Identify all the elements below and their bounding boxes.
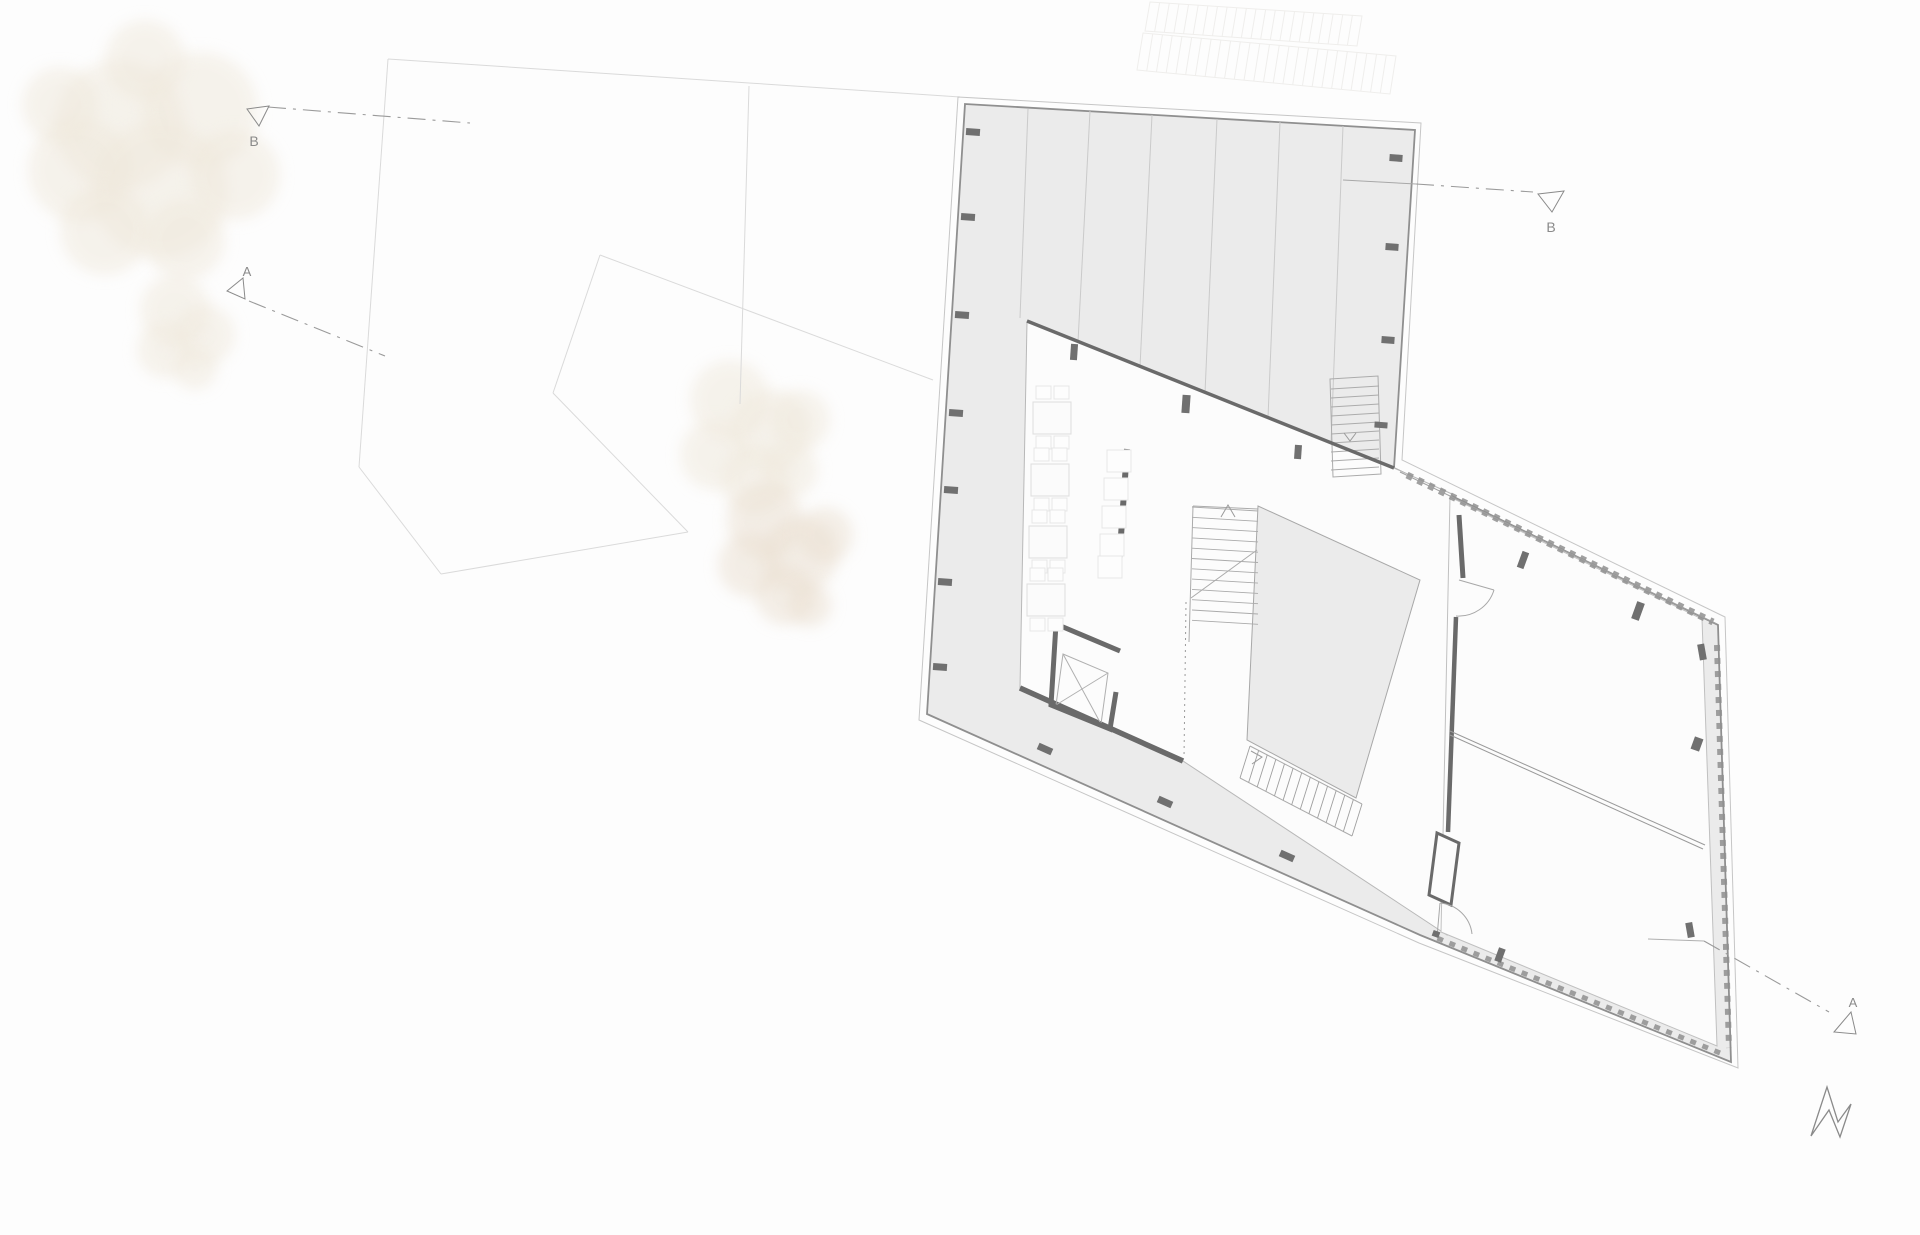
neighbor-stripe xyxy=(1280,11,1285,41)
tree-blob xyxy=(173,346,217,390)
chair xyxy=(1036,436,1051,449)
neighbor-stripe xyxy=(1156,35,1162,72)
neighbor-stripe xyxy=(1264,45,1270,83)
table xyxy=(1102,506,1126,528)
column xyxy=(1381,336,1394,344)
section-label-a-left: A xyxy=(243,264,252,279)
north-arrow-icon xyxy=(1811,1087,1851,1137)
neighbor-stripe xyxy=(1164,3,1169,32)
neighbor-stripe xyxy=(1273,45,1279,83)
column xyxy=(966,128,980,136)
column xyxy=(938,578,952,586)
neighbor-stripe xyxy=(1299,12,1304,42)
neighbor-stripe xyxy=(1309,13,1314,43)
neighbor-stripe xyxy=(1351,52,1357,90)
neighbor-stripe xyxy=(1312,49,1318,87)
neighbor-stripe xyxy=(1174,4,1179,33)
chair xyxy=(1054,436,1069,449)
section-label-b-right: B xyxy=(1546,219,1555,235)
tree-blob xyxy=(797,507,853,563)
column xyxy=(1294,445,1302,459)
chair xyxy=(1054,386,1069,399)
tree-blob xyxy=(60,185,150,275)
neighbor-stripe xyxy=(1318,13,1323,43)
tree-blob xyxy=(145,200,225,280)
building xyxy=(919,97,1738,1068)
property-line xyxy=(359,59,388,467)
neighbor-stripe xyxy=(1338,15,1343,45)
floor-plan-drawing: B A B A xyxy=(0,0,1920,1235)
neighbor-stripe xyxy=(1332,51,1338,89)
neighbor-stripe xyxy=(1261,10,1266,40)
section-line-b-left: B xyxy=(247,106,470,149)
neighbor-stripe xyxy=(1205,39,1211,76)
chair xyxy=(1052,448,1067,461)
property-line xyxy=(749,83,960,97)
neighbor-stripe xyxy=(1270,10,1275,40)
table xyxy=(1029,526,1067,558)
neighbor-stripe xyxy=(1293,47,1299,85)
chair xyxy=(1036,386,1051,399)
neighbor-stripe xyxy=(1186,37,1192,74)
table xyxy=(1100,534,1124,556)
chair xyxy=(1034,498,1049,511)
neighbor-stripe xyxy=(1234,42,1240,79)
neighbor-stripe xyxy=(1176,37,1182,74)
chair xyxy=(1050,510,1065,523)
neighbor-stripe xyxy=(1212,6,1217,35)
neighbor-stripe xyxy=(1254,44,1260,81)
neighbor-stripe xyxy=(1341,52,1347,90)
property-line xyxy=(441,532,688,574)
column xyxy=(1070,344,1078,360)
tree-blob xyxy=(22,67,98,143)
neighbor-stripe xyxy=(1380,55,1386,93)
chair xyxy=(1032,510,1047,523)
chair xyxy=(1048,618,1063,631)
neighbor-stripe xyxy=(1241,8,1246,37)
neighbor-stripe xyxy=(1283,46,1289,84)
neighbor-stripe xyxy=(1361,53,1367,91)
neighbor-stripe xyxy=(1244,43,1250,80)
section-label-b-left: B xyxy=(249,133,258,149)
neighbor-stripe xyxy=(1328,14,1333,44)
chair xyxy=(1048,568,1063,581)
chair xyxy=(1052,498,1067,511)
neighbor-stripe xyxy=(1222,7,1227,36)
section-line-a-left: A xyxy=(227,264,385,356)
table xyxy=(1031,464,1069,496)
property-line xyxy=(388,59,749,83)
neighbor-stripe xyxy=(1302,48,1308,86)
table xyxy=(1027,584,1065,616)
neighbor-stripe xyxy=(1371,54,1377,92)
column xyxy=(933,663,947,671)
chair xyxy=(1030,568,1045,581)
neighbor-stripe xyxy=(1251,9,1256,39)
table xyxy=(1098,556,1122,578)
property-line xyxy=(553,255,600,393)
chair xyxy=(1034,448,1049,461)
property-line xyxy=(359,467,441,574)
column xyxy=(1389,154,1402,162)
tree-blob xyxy=(788,583,832,627)
site-trees xyxy=(22,20,853,627)
property-line xyxy=(553,393,688,532)
section-marker-a-right xyxy=(1834,1012,1856,1034)
table xyxy=(1104,478,1128,500)
column xyxy=(961,213,975,221)
property-line xyxy=(740,86,749,404)
neighbor-stripe xyxy=(1193,5,1198,34)
property-lines xyxy=(359,59,960,574)
table xyxy=(1107,450,1131,472)
column xyxy=(955,311,969,319)
neighbor-stripe xyxy=(1184,5,1189,34)
neighbor-stripe xyxy=(1347,15,1352,45)
section-marker-a-left xyxy=(227,278,245,299)
neighbor-stripe xyxy=(1155,3,1160,32)
column xyxy=(1181,395,1190,414)
neighbor-stripe xyxy=(1225,41,1231,78)
neighbor-stripe xyxy=(1290,12,1295,42)
column xyxy=(944,486,958,494)
section-label-a-right: A xyxy=(1849,995,1858,1010)
column xyxy=(1385,243,1398,251)
neighbor-stripe xyxy=(1203,6,1208,35)
neighbor-stripe xyxy=(1166,36,1172,73)
neighbor-building xyxy=(1137,2,1396,94)
chair xyxy=(1030,618,1045,631)
column xyxy=(949,409,963,417)
neighbor-stripe xyxy=(1232,8,1237,37)
column xyxy=(1374,422,1387,429)
neighbor-stripe xyxy=(1195,38,1201,75)
neighbor-stripe xyxy=(1322,50,1328,88)
neighbor-stripe xyxy=(1215,40,1221,77)
wing-floor xyxy=(1441,497,1717,1046)
property-line xyxy=(600,255,933,380)
table xyxy=(1033,402,1071,434)
neighbor-stripe xyxy=(1147,34,1153,71)
section-marker-b-right xyxy=(1538,191,1564,212)
tree-blob xyxy=(105,20,185,100)
tree-blob xyxy=(770,390,830,450)
